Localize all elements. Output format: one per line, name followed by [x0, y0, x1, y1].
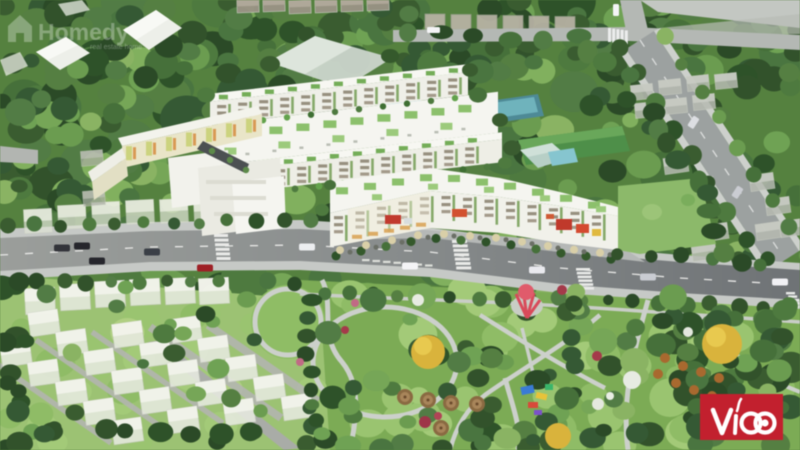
- svg-text:Homedy: Homedy: [38, 19, 129, 45]
- svg-text:real estate home: real estate home: [90, 44, 142, 51]
